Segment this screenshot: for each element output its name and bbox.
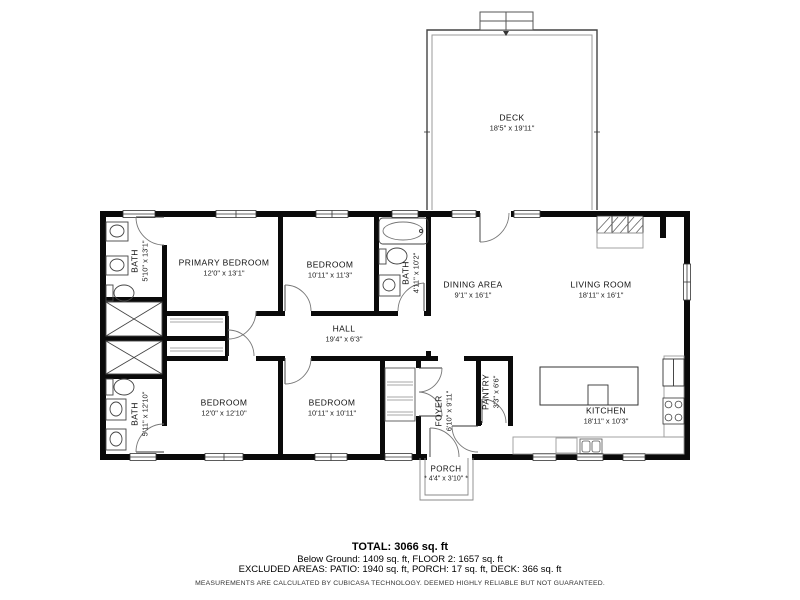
toilet-icon xyxy=(379,249,386,264)
foyer-closet-shelves xyxy=(385,368,415,421)
floorplan-linework xyxy=(0,0,800,600)
room-label-pantry: PANTRY 3'3" x 6'6" xyxy=(481,374,502,410)
excluded-areas-text: EXCLUDED AREAS: PATIO: 1940 sq. ft, PORC… xyxy=(0,564,800,575)
toilet-icon xyxy=(106,379,113,395)
kitchen-island xyxy=(540,367,638,405)
disclaimer-text: MEASUREMENTS ARE CALCULATED BY CUBICASA … xyxy=(0,580,800,587)
room-label-bath-middle: BATH 4'11" x 10'2" xyxy=(401,253,422,294)
dishwasher-icon xyxy=(556,438,577,453)
stove-icon xyxy=(663,398,684,424)
interior-walls xyxy=(100,217,666,454)
stairs-icon xyxy=(597,216,643,248)
room-label-bedroom-top: BEDROOM 10'11" x 11'3" xyxy=(307,260,354,281)
room-label-bedroom-bottom-left: BEDROOM 12'0" x 12'10" xyxy=(201,398,248,419)
room-label-bath-upper-left: BATH 5'10" x 13'1" xyxy=(130,240,151,281)
counter-bottom xyxy=(513,437,684,454)
room-label-porch: PORCH * 4'4" x 3'10" * xyxy=(424,464,468,483)
room-label-kitchen: KITCHEN 18'11" x 10'3" xyxy=(584,406,629,427)
deck-door-opening xyxy=(480,211,511,217)
room-label-hall: HALL 19'4" x 6'3" xyxy=(326,324,363,345)
front-door-opening xyxy=(427,454,472,460)
room-label-primary-bedroom: PRIMARY BEDROOM 12'0" x 13'1" xyxy=(179,258,270,279)
room-label-foyer: FOYER 6'10" x 9'11" xyxy=(434,391,455,432)
room-label-living-room: LIVING ROOM 18'11" x 16'1" xyxy=(570,280,631,301)
fridge-icon xyxy=(663,359,684,386)
total-area-text: TOTAL: 3066 sq. ft xyxy=(0,541,800,553)
hall-closet-rods xyxy=(170,319,223,351)
room-label-bedroom-bottom-middle: BEDROOM 10'11" x 10'11" xyxy=(308,398,356,419)
floorplan-page: DECK 18'5" x 19'11" BATH 5'10" x 13'1" P… xyxy=(0,0,800,600)
room-label-bath-lower-left: BATH 5'11" x 12'10" xyxy=(130,392,151,437)
room-label-dining-area: DINING AREA 9'1" x 16'1" xyxy=(443,280,502,301)
room-label-deck: DECK 18'5" x 19'11" xyxy=(490,113,535,134)
sink-icon xyxy=(580,439,602,454)
deck-steps-icon xyxy=(480,12,533,36)
